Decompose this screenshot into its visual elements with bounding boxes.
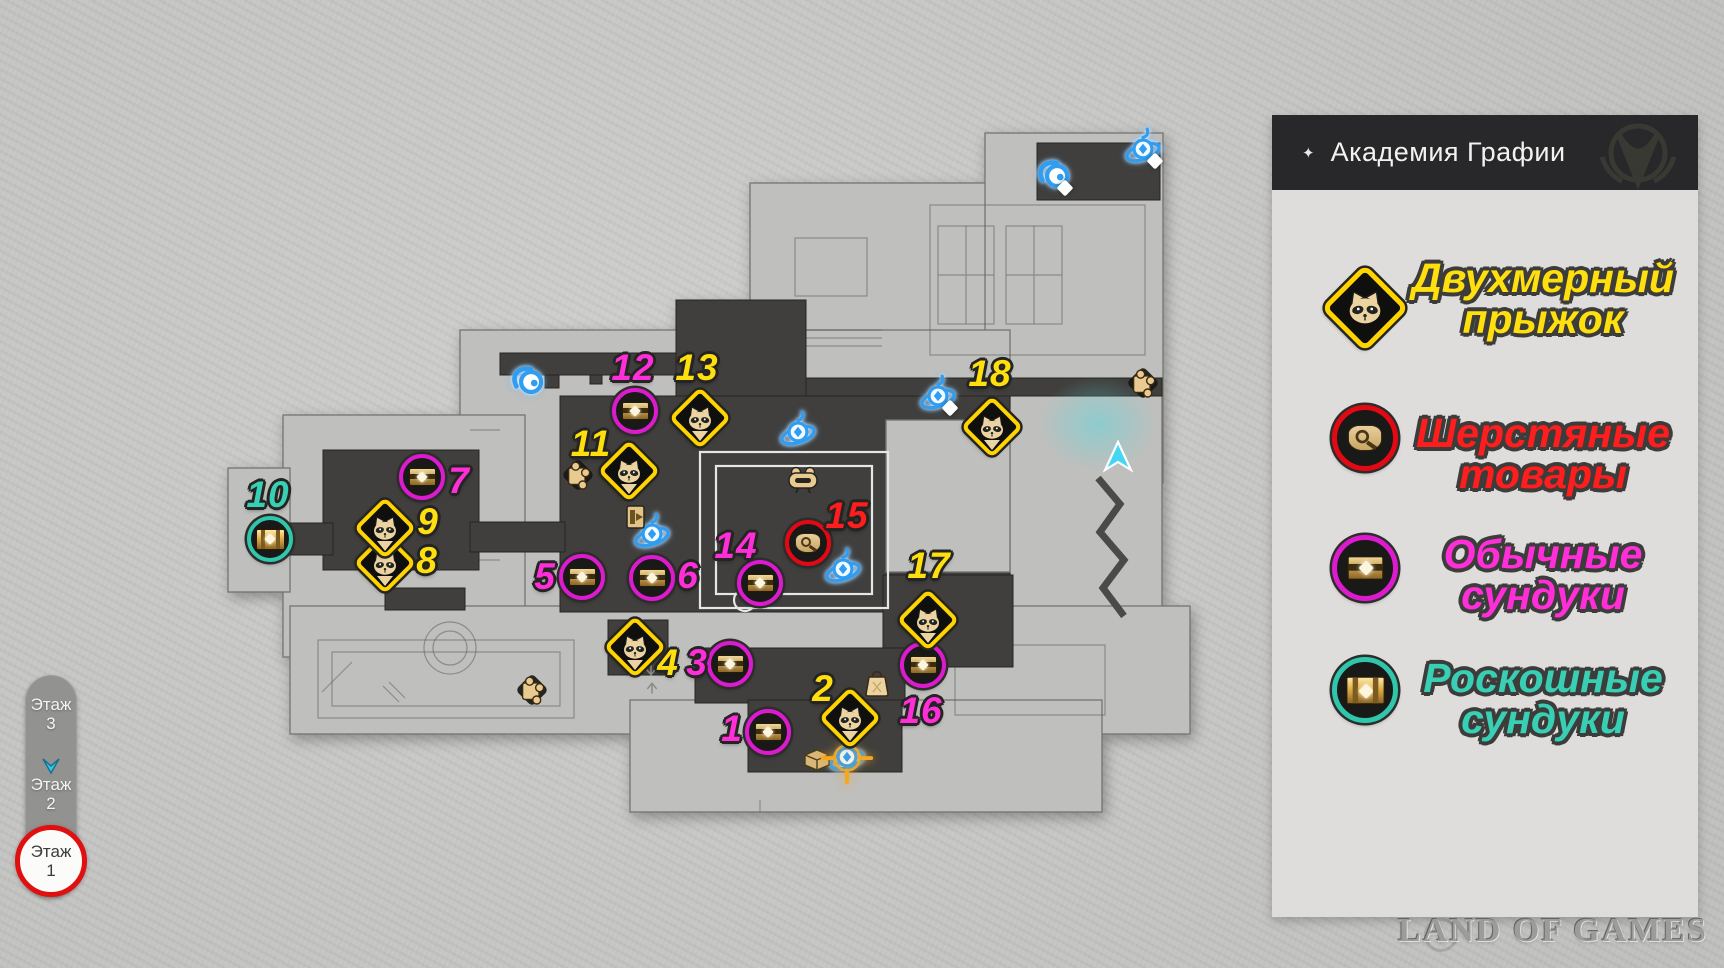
sparkle-icon: [1149, 155, 1161, 167]
marker-label-4: 4: [657, 642, 679, 684]
floor-1-number: 1: [46, 861, 55, 880]
shop-bag-icon: [861, 665, 893, 699]
map-marker-10[interactable]: [247, 516, 293, 562]
map-marker-4[interactable]: [613, 625, 657, 669]
floor-2-button[interactable]: Этаж 2: [25, 775, 77, 813]
legend-icon-chest: [1332, 535, 1398, 601]
legend-icon-wool: [1332, 405, 1398, 471]
marker-label-15: 15: [825, 495, 868, 537]
marker-label-13: 13: [675, 347, 718, 389]
floor-1-button-active[interactable]: Этаж 1: [15, 825, 87, 897]
warp-trotter-icon: [785, 465, 821, 495]
marker-label-3: 3: [686, 642, 708, 684]
marker-label-14: 14: [714, 525, 757, 567]
exit-sign-icon: [622, 502, 652, 532]
marker-label-9: 9: [417, 501, 439, 543]
map-marker-7[interactable]: [399, 454, 445, 500]
map-marker-2[interactable]: [828, 696, 872, 740]
legend-panel: ✦ Академия Графии ДвухмерныйпрыжокШерстя…: [1272, 115, 1698, 917]
four-point-star-icon: ✦: [1302, 144, 1315, 162]
map-guide-screen: 123456789101112131415161718 ✦ Академия Г…: [0, 0, 1724, 968]
map-marker-9[interactable]: [363, 506, 407, 550]
legend-label-wool: Шерстяныетовары: [1400, 413, 1686, 495]
marker-label-8: 8: [416, 540, 438, 582]
legend-label-luxury: Роскошныесундуки: [1400, 658, 1686, 740]
marker-label-17: 17: [907, 545, 950, 587]
floor-3-label: Этаж: [25, 695, 77, 714]
map-marker-6[interactable]: [629, 555, 675, 601]
marker-label-12: 12: [611, 347, 654, 389]
puzzle-piece-icon: [1123, 363, 1163, 403]
map-marker-5[interactable]: [559, 554, 605, 600]
floor-3-number: 3: [25, 714, 77, 733]
map-marker-17[interactable]: [906, 598, 950, 642]
player-arrow-icon: [1103, 440, 1133, 474]
marker-label-6: 6: [677, 555, 699, 597]
space-anchor-icon: [775, 410, 821, 456]
faction-emblem-icon: [1580, 117, 1690, 189]
sparkle-icon: [944, 402, 956, 414]
sparkle-icon: [1059, 182, 1071, 194]
puzzle-piece-icon: [512, 670, 552, 710]
map-marker-13[interactable]: [678, 396, 722, 440]
floor-selector: Этаж 3 Этаж 2 Этаж 1: [25, 675, 77, 897]
marker-label-5: 5: [534, 556, 556, 598]
map-marker-3[interactable]: [707, 641, 753, 687]
marker-label-18: 18: [968, 353, 1011, 395]
legend-label-jump: Двухмерныйпрыжок: [1400, 258, 1686, 340]
legend-icon-luxury: [1332, 657, 1398, 723]
map-marker-1[interactable]: [745, 709, 791, 755]
marker-label-11: 11: [571, 423, 611, 465]
map-marker-15[interactable]: [785, 520, 831, 566]
watermark: LAND OF GAMES: [1398, 912, 1708, 950]
legend-icon-jump: [1334, 277, 1396, 339]
floor-2-number: 2: [25, 794, 77, 813]
marker-label-16: 16: [899, 690, 942, 732]
map-marker-18[interactable]: [970, 405, 1014, 449]
map-marker-11[interactable]: [607, 449, 651, 493]
marker-label-10: 10: [246, 474, 289, 516]
floor-2-label: Этаж: [25, 775, 77, 794]
floor-1-label: Этаж: [31, 842, 72, 861]
map-marker-12[interactable]: [612, 388, 658, 434]
legend-label-chest: Обычныесундуки: [1400, 534, 1686, 616]
marker-label-2: 2: [812, 668, 834, 710]
marker-label-7: 7: [448, 460, 470, 502]
legend-title: Академия Графии: [1331, 137, 1566, 168]
map-marker-16[interactable]: [900, 642, 946, 688]
origami-bird-icon: [508, 361, 550, 403]
legend-header: ✦ Академия Графии: [1272, 115, 1698, 190]
chevron-down-icon: [41, 757, 61, 775]
floor-3-button[interactable]: Этаж 3: [25, 695, 77, 733]
marker-label-1: 1: [721, 708, 743, 750]
